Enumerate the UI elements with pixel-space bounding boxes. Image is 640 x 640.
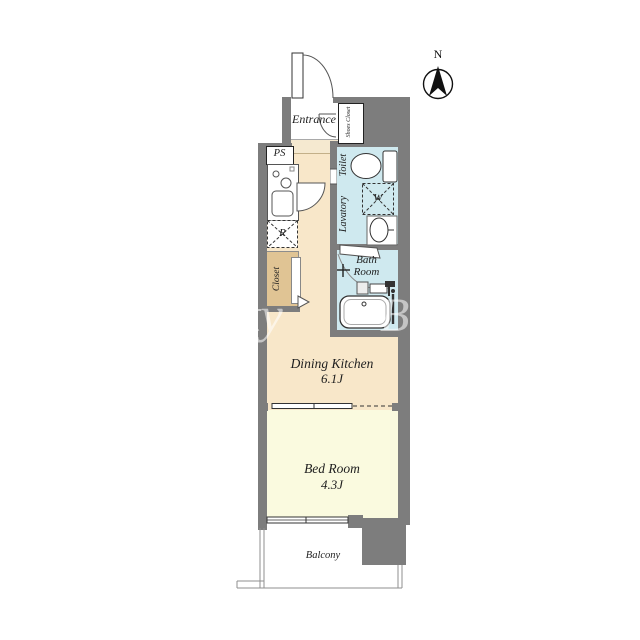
entrance-label: Entrance bbox=[288, 113, 340, 127]
pipe-space-label: PS bbox=[266, 148, 293, 160]
balcony-label: Balcony bbox=[262, 550, 384, 562]
bathroom-label: Bath Room bbox=[337, 255, 396, 278]
dining-kitchen-size: 6.1J bbox=[266, 372, 398, 387]
entrance-door-icon bbox=[292, 53, 333, 98]
bedroom-label: Bed Room bbox=[266, 461, 398, 477]
wall bbox=[398, 97, 410, 525]
compass-north-label: N bbox=[430, 48, 446, 62]
bathroom-label-line2: Room bbox=[337, 267, 396, 279]
toilet-label: Toilet bbox=[339, 145, 351, 185]
wall bbox=[258, 515, 267, 530]
wall bbox=[337, 244, 398, 250]
wall bbox=[258, 306, 300, 312]
wall bbox=[330, 141, 337, 337]
wall bbox=[258, 403, 268, 411]
floorplan-canvas: N Entrance Shoes Closet PS R Closet Toil… bbox=[0, 0, 640, 640]
dining-kitchen-label: Dining Kitchen bbox=[266, 356, 398, 372]
bathroom-label-line1: Bath bbox=[337, 255, 396, 267]
closet-label: Closet bbox=[273, 259, 285, 299]
wall bbox=[392, 403, 410, 411]
refrigerator-label: R bbox=[267, 227, 298, 240]
wall bbox=[348, 515, 363, 528]
lavatory-label: Lavatory bbox=[339, 188, 351, 240]
washer-label: W bbox=[362, 192, 394, 205]
closet-door-panel bbox=[291, 257, 301, 304]
bedroom-size: 4.3J bbox=[266, 478, 398, 493]
shoes-closet-label: Shoes Closet bbox=[346, 102, 354, 142]
north-compass-icon bbox=[424, 66, 453, 99]
kitchen-counter bbox=[267, 164, 299, 221]
